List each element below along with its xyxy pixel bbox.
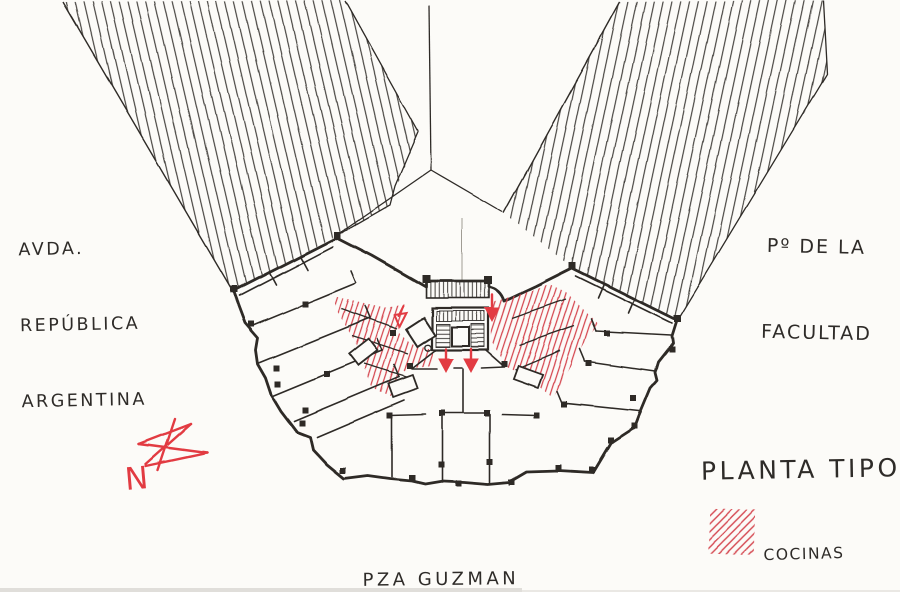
plaza-label-guzman-el-bueno: PZA GUZMAN EL BUENO (362, 507, 521, 592)
north-arrow-icon (139, 419, 207, 470)
street-label-avda-republica-argentina: AVDA. REPÚBLICA ARGENTINA (17, 185, 148, 467)
drawing-title: PLANTA TIPO (701, 453, 900, 485)
sketch-canvas: AVDA. REPÚBLICA ARGENTINA Pº DE LA FACUL… (0, 0, 900, 592)
street-label-line: AVDA. (18, 235, 144, 263)
elevator-shaft (452, 327, 469, 346)
legend-labels: COCINAS OFICIOS BAÑOS (762, 507, 848, 592)
street-label-paseo-facultad: Pº DE LA FACULTAD (764, 175, 876, 405)
street-label-line: REPÚBLICA (20, 312, 146, 340)
scan-edge-shadow (0, 588, 522, 592)
street-label-line: Pº DE LA (767, 232, 874, 263)
legend-item-cocinas: COCINAS (763, 544, 844, 565)
north-letter: N (123, 460, 149, 498)
legend-swatch-red-hatch (708, 508, 756, 555)
street-label-line: ARGENTINA (21, 388, 147, 416)
street-label-line: FACULTAD (761, 317, 872, 348)
